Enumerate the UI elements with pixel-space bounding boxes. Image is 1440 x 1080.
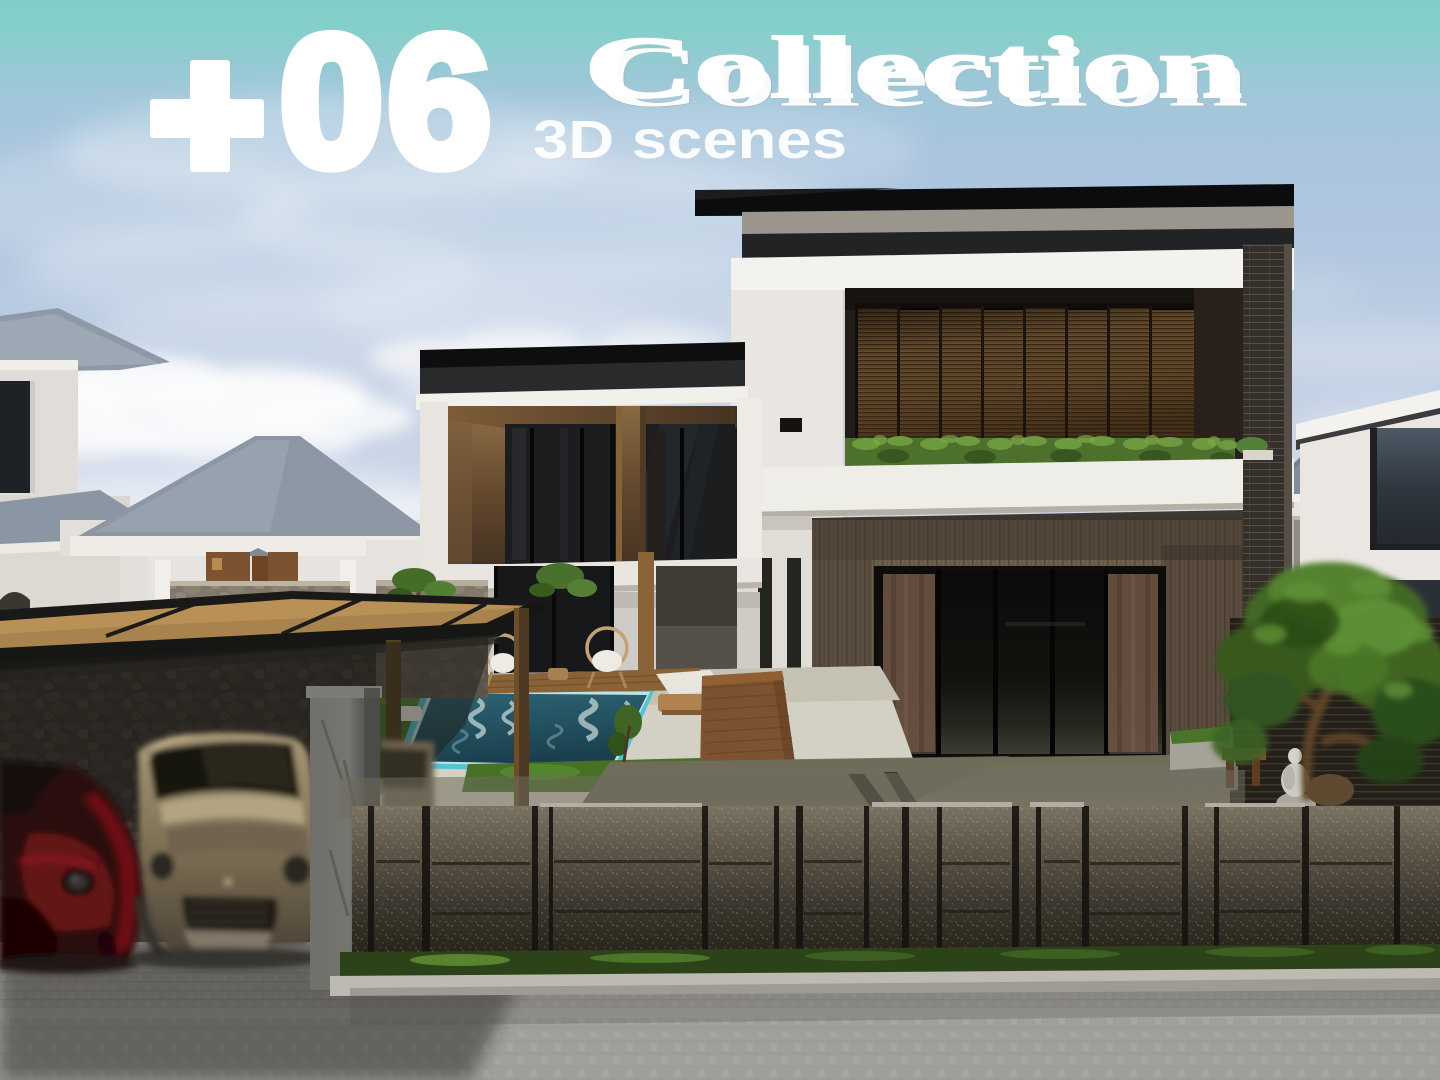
svg-text:Collection: Collection [584, 20, 1242, 117]
svg-text:06: 06 [280, 0, 496, 205]
svg-text:3D scenes: 3D scenes [533, 110, 847, 170]
